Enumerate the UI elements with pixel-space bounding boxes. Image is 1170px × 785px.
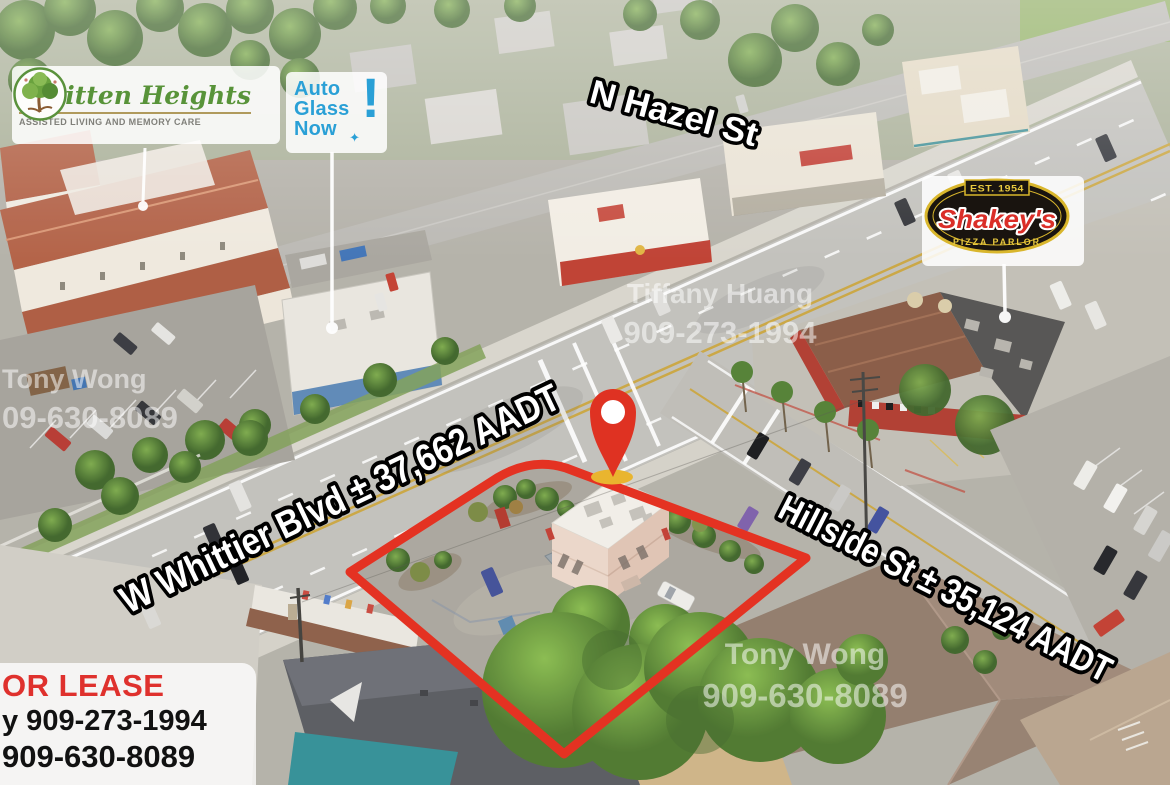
sparkle-icon: ✦ [349,130,360,146]
auto-glass-now-sign: Auto Glass Now ! ✦ [286,72,387,153]
lease-contact: y 909-273-1994 [2,707,256,736]
tree-logo-icon [12,66,68,122]
lease-contact: 909-630-8089 [2,741,256,772]
whitten-heights-sign: Whitten Heights ASSISTED LIVING AND MEMO… [12,66,280,144]
shakeys-tagline: PIZZA PARLOR [953,237,1041,247]
shakeys-sign: EST. 1954 Shakey's PIZZA PARLOR [922,176,1084,266]
street-label-hazel: N Hazel St [586,73,762,154]
exclamation-icon: ! [361,70,380,126]
street-label-hillside: Hillside St ± 35,124 AADT [772,487,1119,691]
shakeys-est: EST. 1954 [970,184,1024,194]
street-label-whittier: W Whittier Blvd ± 37,662 AADT [114,377,567,622]
shakeys-logo-icon: EST. 1954 Shakey's PIZZA PARLOR [922,176,1072,256]
shakeys-name: Shakey's [938,204,1056,234]
lease-banner: OR LEASE y 909-273-1994 909-630-8089 [0,663,256,785]
lease-title: OR LEASE [2,670,256,701]
aerial-property-flyer: N Hazel St W Whittier Blvd ± 37,662 AADT… [0,0,1170,785]
